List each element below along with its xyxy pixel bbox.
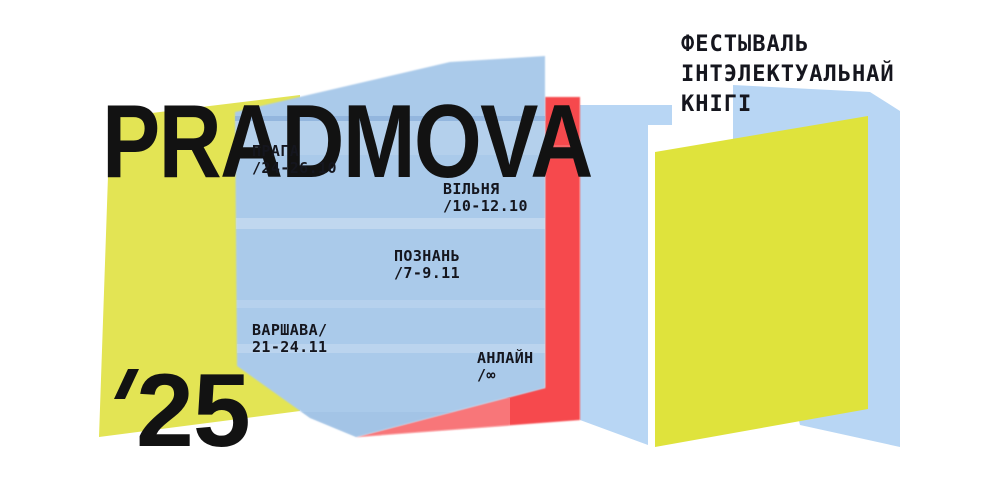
event-city: ПОЗНАНЬ [394,248,460,265]
subtitle-line-1: ФЕСТЫВАЛЬ [681,30,895,60]
subtitle-line-3: КНІГІ [681,90,895,120]
poster-pradmova: PRADMOVA ФЕСТЫВАЛЬ ІНТЭЛЕКТУАЛЬНАЙ КНІГІ… [0,0,1000,500]
event-city: ВАРШАВА/ [252,322,327,339]
festival-subtitle: ФЕСТЫВАЛЬ ІНТЭЛЕКТУАЛЬНАЙ КНІГІ [681,30,895,120]
festival-title: PRADMOVA [102,90,592,194]
event-date: /24-26.10 [252,160,337,177]
year-digits: 25 [136,359,250,463]
event-poznan: ПОЗНАНЬ /7-9.11 [394,248,460,282]
subtitle-line-2: ІНТЭЛЕКТУАЛЬНАЙ [681,60,895,90]
event-warsaw: ВАРШАВА/ 21-24.11 [252,322,327,356]
event-date: /∞ [477,367,534,384]
shape-yellow-right-page [655,116,868,447]
event-city: ВІЛЬНЯ [443,181,528,198]
event-online: АНЛАЙН /∞ [477,350,534,384]
event-date: /7-9.11 [394,265,460,282]
event-vilnius: ВІЛЬНЯ /10-12.10 [443,181,528,215]
event-prague: ПРАГА /24-26.10 [252,143,337,177]
event-city: ПРАГА [252,143,337,160]
event-city: АНЛАЙН [477,350,534,367]
event-date: /10-12.10 [443,198,528,215]
event-date: 21-24.11 [252,339,327,356]
